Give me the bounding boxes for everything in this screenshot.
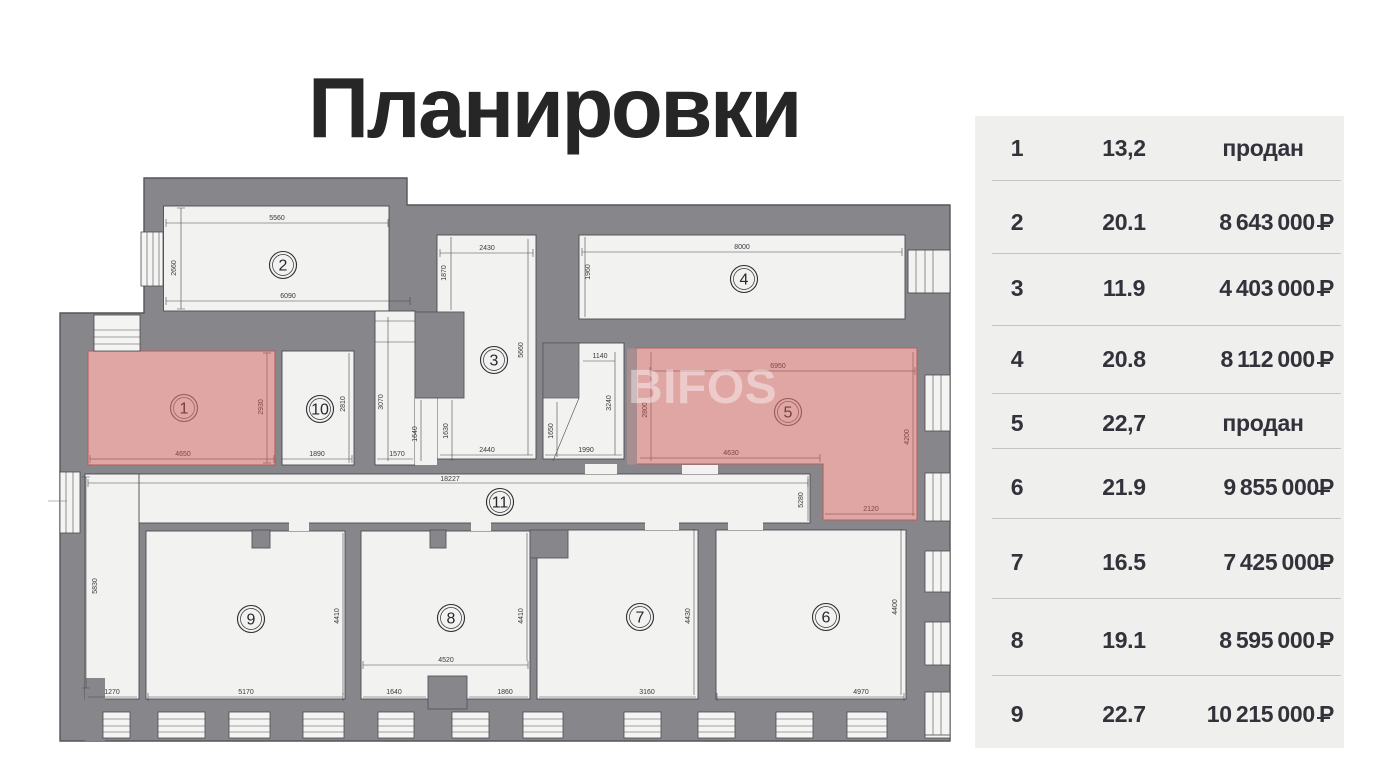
svg-text:4630: 4630 [723, 450, 739, 457]
svg-text:1640: 1640 [412, 426, 419, 442]
svg-text:3070: 3070 [378, 394, 385, 410]
svg-text:4970: 4970 [853, 689, 869, 696]
svg-text:2660: 2660 [171, 260, 178, 276]
svg-text:7: 7 [636, 610, 645, 627]
svg-text:1860: 1860 [497, 689, 513, 696]
svg-text:1890: 1890 [309, 451, 325, 458]
svg-text:4520: 4520 [438, 657, 454, 664]
svg-text:5660: 5660 [518, 342, 525, 358]
svg-text:4430: 4430 [685, 608, 692, 624]
svg-text:18227: 18227 [440, 476, 460, 483]
svg-text:5170: 5170 [238, 689, 254, 696]
svg-text:1630: 1630 [443, 423, 450, 439]
svg-text:6090: 6090 [280, 293, 296, 300]
svg-text:4: 4 [740, 272, 749, 289]
svg-text:1650: 1650 [548, 423, 555, 439]
svg-text:10: 10 [311, 402, 329, 419]
svg-text:3: 3 [490, 353, 499, 370]
svg-text:1: 1 [180, 401, 189, 418]
svg-text:3160: 3160 [639, 689, 655, 696]
svg-text:6: 6 [822, 610, 831, 627]
svg-text:1570: 1570 [389, 451, 405, 458]
svg-text:2: 2 [279, 258, 288, 275]
svg-text:2930: 2930 [258, 399, 265, 415]
svg-text:4410: 4410 [334, 608, 341, 624]
svg-text:1870: 1870 [441, 265, 448, 281]
svg-text:2810: 2810 [340, 396, 347, 412]
svg-text:1960: 1960 [585, 264, 592, 280]
svg-text:2440: 2440 [479, 447, 495, 454]
svg-text:5280: 5280 [798, 492, 805, 508]
svg-text:11: 11 [492, 495, 509, 512]
svg-text:1990: 1990 [578, 447, 594, 454]
svg-text:4400: 4400 [892, 599, 899, 615]
svg-text:BIFOS: BIFOS [628, 361, 777, 414]
svg-text:9: 9 [247, 612, 256, 629]
svg-text:5: 5 [784, 405, 793, 422]
svg-text:8000: 8000 [734, 244, 750, 251]
svg-text:1640: 1640 [386, 689, 402, 696]
svg-text:4410: 4410 [518, 608, 525, 624]
svg-text:1140: 1140 [592, 353, 607, 360]
svg-text:3240: 3240 [606, 395, 613, 411]
svg-text:4650: 4650 [175, 451, 191, 458]
svg-text:4200: 4200 [904, 429, 911, 445]
svg-text:5830: 5830 [92, 578, 99, 594]
svg-text:2120: 2120 [863, 506, 879, 513]
svg-text:2430: 2430 [479, 245, 495, 252]
svg-text:5560: 5560 [269, 215, 285, 222]
svg-text:1270: 1270 [104, 689, 120, 696]
svg-text:8: 8 [447, 611, 456, 628]
